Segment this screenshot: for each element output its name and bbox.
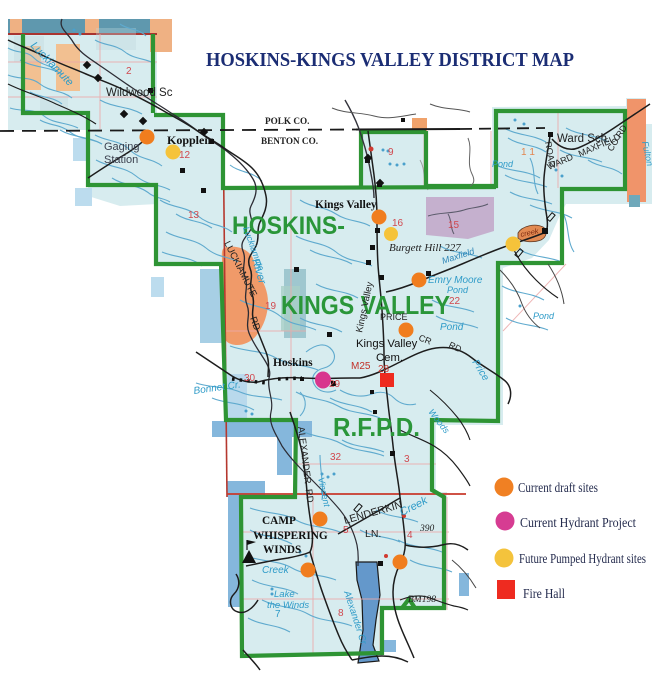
svg-text:9: 9 [388,147,394,158]
svg-text:19: 19 [265,301,277,312]
svg-text:WINDS: WINDS [263,544,301,556]
svg-text:30: 30 [244,373,256,384]
svg-text:R.F.P.D.: R.F.P.D. [333,412,420,442]
svg-text:15: 15 [448,220,460,231]
svg-text:32: 32 [330,452,342,463]
svg-text:Pond: Pond [447,285,469,295]
svg-text:29: 29 [329,379,341,390]
svg-text:Current draft sites: Current draft sites [518,481,598,496]
svg-text:7: 7 [275,609,281,620]
svg-text:3: 3 [404,454,410,465]
svg-text:12: 12 [179,150,191,161]
svg-text:16: 16 [392,218,404,229]
svg-text:Current Hydrant Project: Current Hydrant Project [520,516,636,531]
svg-text:Fire Hall: Fire Hall [523,587,565,602]
svg-text:Wildwood Sc: Wildwood Sc [106,87,173,99]
svg-text:Gaging: Gaging [104,141,139,153]
svg-text:Hoskins: Hoskins [273,357,313,369]
svg-text:CAMP: CAMP [262,515,296,527]
svg-text:LN.: LN. [365,528,381,540]
svg-text:the Winds: the Winds [267,600,309,611]
svg-text:HOSKINS-KINGS VALLEY DISTRICT: HOSKINS-KINGS VALLEY DISTRICT MAP [206,50,574,71]
svg-text:M25: M25 [351,361,371,372]
svg-text:Pond: Pond [492,159,514,169]
svg-text:Kings Valley: Kings Valley [356,338,418,350]
svg-text:2: 2 [126,66,132,77]
svg-text:PRICE: PRICE [380,312,408,322]
svg-text:Future Pumped Hydrant sites: Future Pumped Hydrant sites [519,552,646,567]
svg-text:BM198: BM198 [408,595,436,605]
svg-text:1 1: 1 1 [521,147,535,158]
svg-text:4: 4 [407,530,413,541]
svg-text:8: 8 [338,608,344,619]
svg-text:Pond: Pond [533,311,555,321]
svg-text:Creek: Creek [262,565,290,576]
svg-text:Cem.: Cem. [376,352,403,364]
svg-text:Lake: Lake [274,589,295,600]
svg-text:POLK CO.: POLK CO. [265,116,309,126]
svg-text:Kings Valley: Kings Valley [315,199,377,211]
svg-text:5: 5 [343,525,349,536]
svg-text:Kopplein: Kopplein [167,133,215,147]
svg-text:Pond: Pond [440,322,464,333]
svg-text:28: 28 [378,364,390,375]
svg-text:WHISPERING: WHISPERING [253,530,328,542]
svg-text:Station: Station [104,154,138,166]
svg-text:390: 390 [419,524,435,534]
svg-text:22: 22 [449,296,461,307]
svg-text:13: 13 [188,210,200,221]
svg-text:BENTON CO.: BENTON CO. [261,136,318,146]
